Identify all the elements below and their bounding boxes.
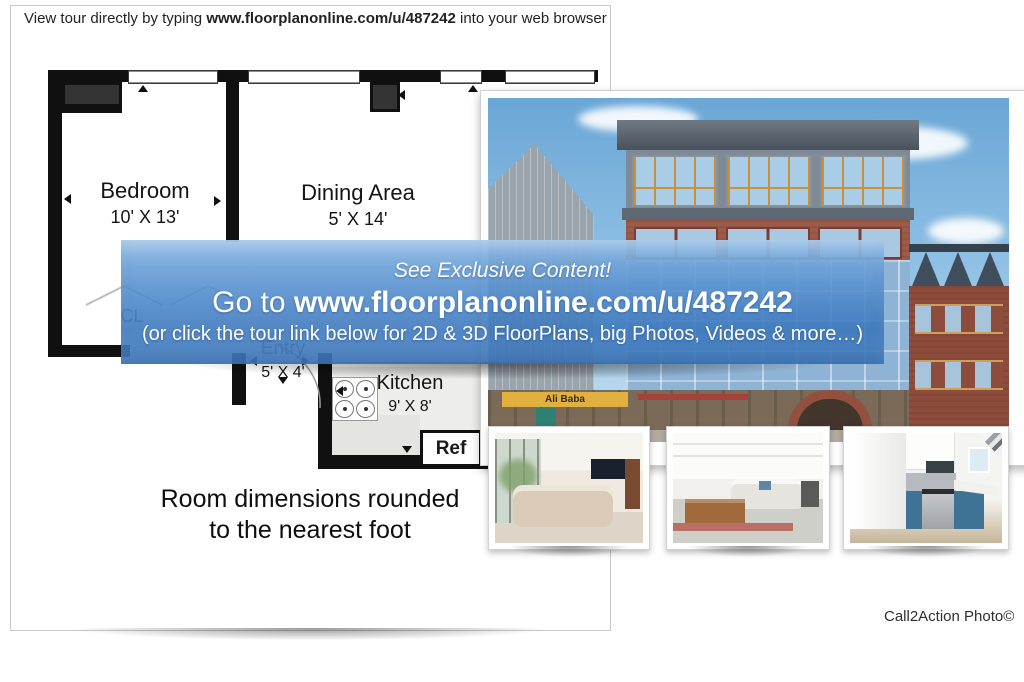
cta-banner[interactable]: See Exclusive Content! Go to www.floorpl… bbox=[121, 240, 884, 364]
thumb-curved-shadow bbox=[492, 546, 646, 560]
dining-dims: 5' X 14' bbox=[278, 209, 438, 230]
bedroom-name: Bedroom bbox=[75, 178, 215, 204]
shop-sign: Ali Baba bbox=[502, 392, 628, 407]
banner-cta-url[interactable]: www.floorplanonline.com/u/487242 bbox=[294, 286, 793, 319]
banner-cta-line[interactable]: Go to www.floorplanonline.com/u/487242 bbox=[212, 286, 793, 320]
rowhouse-window-row bbox=[915, 360, 1003, 390]
coffee-table-shape bbox=[685, 499, 745, 523]
wall-arrow-icon bbox=[64, 194, 71, 204]
window-icon bbox=[248, 70, 360, 84]
range-icon bbox=[922, 489, 954, 529]
photo-credit: Call2Action Photo© bbox=[884, 608, 1010, 625]
window-band bbox=[632, 155, 718, 207]
paper-curl-shadow bbox=[14, 628, 606, 644]
ceiling-beam bbox=[673, 443, 823, 445]
kitchen-dims: 9' X 8' bbox=[368, 398, 452, 416]
dormer-icon bbox=[912, 252, 940, 286]
wall-arrow-icon bbox=[468, 85, 478, 92]
kitchen-photo bbox=[850, 433, 1002, 543]
window-icon bbox=[128, 70, 218, 84]
wall-segment bbox=[62, 104, 122, 113]
wall-segment bbox=[226, 82, 239, 242]
center-building-cornice bbox=[617, 120, 919, 150]
wall-arrow-icon bbox=[336, 386, 343, 396]
thumb-curved-shadow bbox=[670, 546, 826, 560]
banner-cta-prefix: Go to bbox=[212, 286, 294, 319]
living-room-photo bbox=[495, 433, 643, 543]
banner-subtext: (or click the tour link below for 2D & 3… bbox=[142, 323, 863, 346]
cooktop bbox=[922, 489, 954, 494]
rowhouse-window-row bbox=[915, 304, 1003, 334]
wall-arrow-icon bbox=[402, 446, 412, 453]
thumbnail-living-room[interactable] bbox=[488, 426, 650, 550]
right-rowhouses bbox=[909, 286, 1009, 442]
sofa-shape bbox=[513, 485, 613, 527]
thumbnail-living-area[interactable] bbox=[666, 426, 830, 550]
cloud-shape bbox=[928, 218, 1004, 244]
footnote-line-2: to the nearest foot bbox=[150, 515, 470, 546]
shop-awning bbox=[638, 394, 748, 400]
wall-arrow-icon bbox=[398, 90, 405, 100]
wall-arrow-icon bbox=[214, 196, 221, 206]
thumbnail-kitchen[interactable] bbox=[843, 426, 1009, 550]
dormer-icon bbox=[976, 252, 1004, 286]
bedroom-dims: 10' X 13' bbox=[75, 207, 215, 228]
window-band bbox=[726, 155, 812, 207]
tv-icon bbox=[591, 459, 625, 479]
blue-cabinet bbox=[954, 491, 984, 529]
living-area-photo bbox=[673, 433, 823, 543]
center-building-band bbox=[622, 208, 914, 220]
promo-image: View tour directly by typing www.floorpl… bbox=[0, 0, 1024, 682]
dining-column-box bbox=[370, 82, 400, 112]
center-building-top-floor bbox=[626, 150, 910, 208]
dimensions-footnote: Room dimensions rounded to the nearest f… bbox=[150, 484, 470, 546]
rowhouse-roofline bbox=[909, 244, 1009, 252]
shop-sign-text: Ali Baba bbox=[545, 394, 585, 405]
wall-arrow-icon bbox=[138, 85, 148, 92]
microwave-icon bbox=[926, 461, 954, 473]
rug-shape bbox=[673, 523, 793, 531]
banner-shadow bbox=[110, 362, 894, 386]
refrigerator-label: Ref bbox=[436, 438, 467, 460]
banner-tagline: See Exclusive Content! bbox=[394, 259, 611, 283]
thumb-curved-shadow bbox=[847, 546, 1004, 560]
arched-entrance bbox=[788, 390, 872, 430]
cabinet-shape bbox=[625, 459, 640, 509]
window-icon bbox=[440, 70, 482, 84]
window-icon bbox=[505, 70, 595, 84]
desk-shape bbox=[801, 481, 819, 507]
ceiling-beam bbox=[673, 455, 823, 457]
cabinet-panel bbox=[850, 433, 906, 529]
blue-cabinet bbox=[906, 491, 922, 529]
room-label-dining: Dining Area 5' X 14' bbox=[278, 180, 438, 230]
street-level-shops: Ali Baba bbox=[488, 390, 909, 430]
kitchen-window bbox=[968, 447, 990, 473]
footnote-line-1: Room dimensions rounded bbox=[150, 484, 470, 515]
room-label-bedroom: Bedroom 10' X 13' bbox=[75, 178, 215, 228]
dormer-icon bbox=[944, 252, 972, 286]
pillow-shape bbox=[759, 481, 771, 490]
burner-icon bbox=[335, 400, 354, 418]
window-band bbox=[820, 155, 906, 207]
refrigerator-box: Ref bbox=[420, 430, 482, 467]
dining-name: Dining Area bbox=[278, 180, 438, 206]
